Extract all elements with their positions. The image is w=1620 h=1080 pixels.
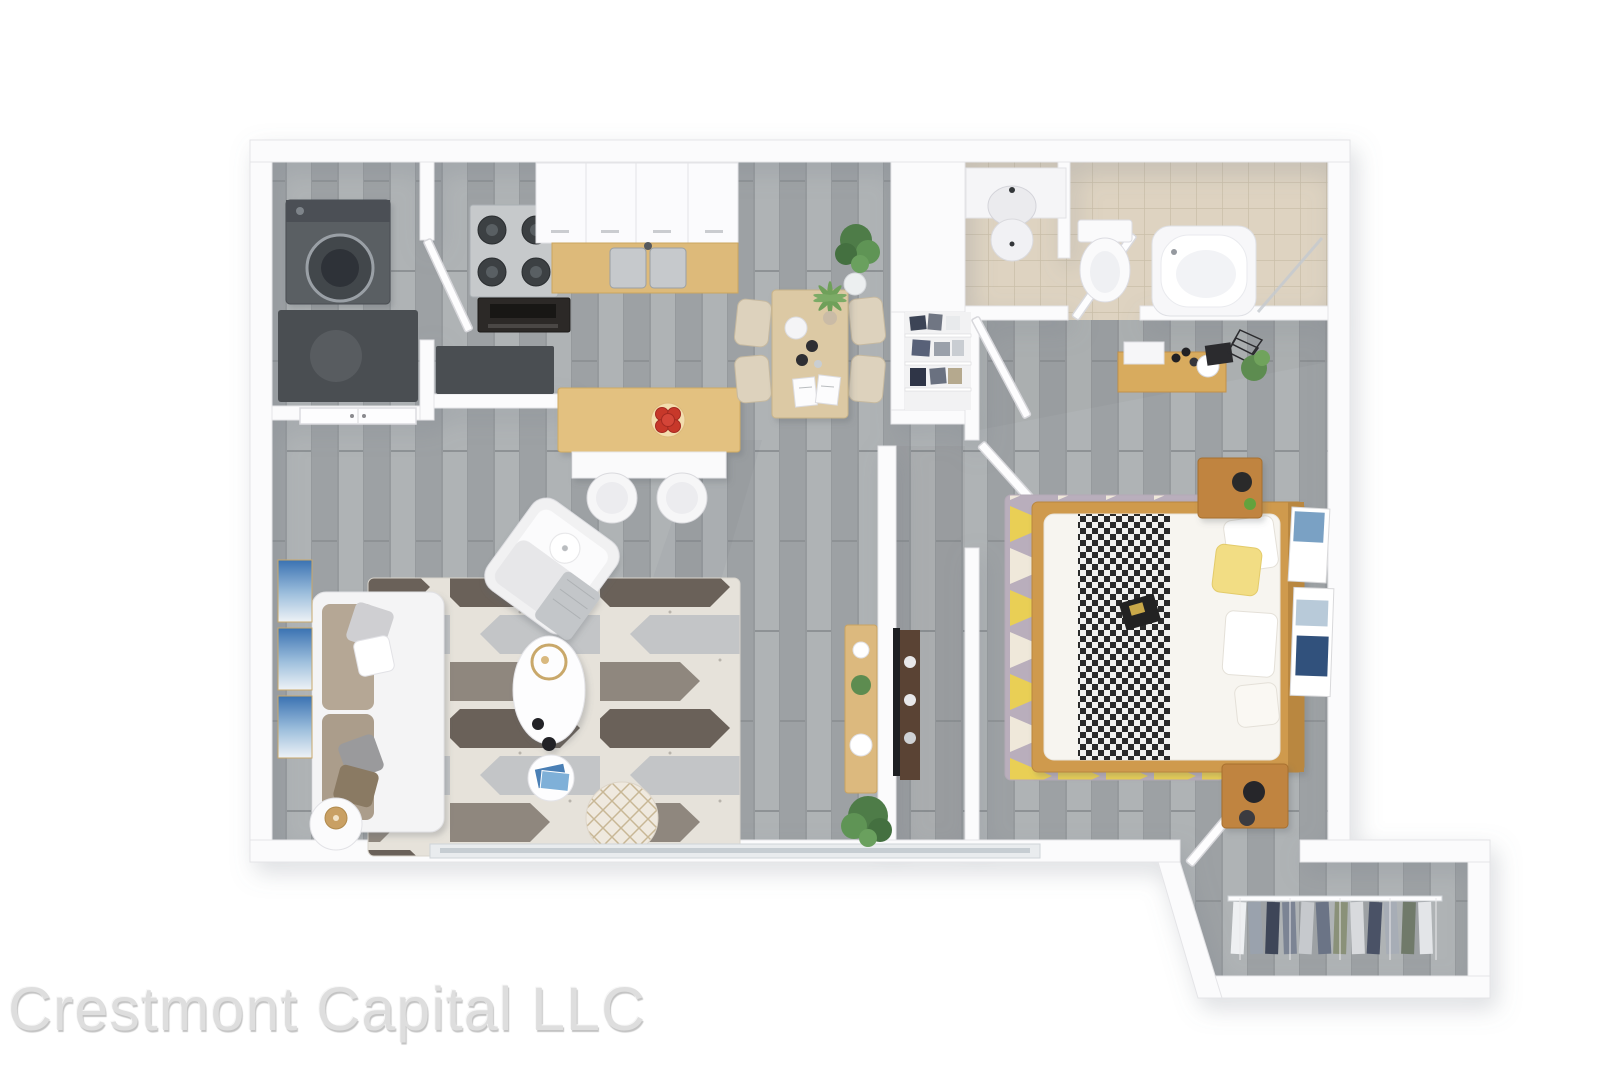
linen-closet — [905, 312, 971, 410]
cosmetics-icon — [1172, 354, 1181, 363]
corner-counter — [436, 346, 554, 394]
wall-top — [250, 140, 1350, 162]
wire-shelf-rail — [1228, 896, 1442, 901]
counter-double-sink — [552, 242, 738, 293]
wall-bottom-right — [1300, 840, 1490, 862]
bag-icon — [1205, 342, 1234, 365]
lamp-icon — [1243, 781, 1265, 803]
yellow-pillow — [1211, 543, 1263, 596]
wall-extension-bottom — [1214, 976, 1490, 998]
apple-bowl-icon — [651, 403, 685, 437]
nightstand-south — [1222, 764, 1288, 828]
floor-plan-render: Crestmont Capital LLC — [0, 0, 1620, 1080]
plant-icon — [851, 675, 871, 695]
upper-cabinets — [536, 163, 738, 243]
oven-icon — [478, 298, 570, 332]
dining-chair — [734, 355, 772, 404]
magazine-side-table — [528, 755, 574, 801]
dryer-top-icon — [310, 330, 362, 382]
floor-plan-canvas — [0, 0, 1620, 1080]
mirror-icon — [1124, 342, 1164, 364]
sofa — [312, 592, 444, 832]
wall-closet-south — [891, 410, 971, 424]
pot-icon — [796, 354, 808, 366]
wall-left — [250, 162, 272, 862]
wall-bedroom-west-lower — [965, 548, 979, 840]
faucet-icon — [644, 242, 652, 250]
wire-shelf — [905, 362, 971, 365]
entry-door — [300, 408, 416, 424]
tv-icon — [893, 628, 900, 776]
lamp-icon — [1232, 472, 1252, 492]
bar-stool-seat — [666, 482, 698, 514]
plant-icon — [1244, 498, 1256, 510]
clock-icon — [1239, 810, 1255, 826]
wall-right — [1328, 162, 1350, 862]
open-magazine-icon — [793, 377, 818, 407]
breakfast-bar — [558, 388, 740, 478]
watermark-text: Crestmont Capital LLC — [8, 974, 768, 1044]
magazine-icon — [540, 771, 570, 792]
pot-icon — [806, 340, 818, 352]
dining-chair — [848, 296, 887, 345]
toilet-icon — [1078, 220, 1132, 302]
white-pillow — [1222, 610, 1278, 677]
bathtub-icon — [1152, 226, 1256, 316]
bar-stool-seat — [596, 482, 628, 514]
wall-dining-east — [891, 162, 965, 312]
wall-art-triptych — [278, 560, 312, 758]
wall-laundry-east-upper — [420, 162, 434, 240]
throw-pillow — [353, 635, 396, 678]
leaning-posters — [1288, 507, 1334, 697]
faucet-icon — [1009, 187, 1015, 193]
cosmetics-icon — [1182, 348, 1191, 357]
tub-faucet-icon — [1171, 249, 1177, 255]
dining-chair — [848, 355, 886, 404]
washing-machine-icon — [286, 200, 390, 304]
vase-icon — [853, 642, 869, 658]
wall-bathroom-south-left — [965, 306, 1068, 320]
pouf — [586, 782, 658, 854]
white-pillow — [1234, 682, 1280, 728]
wire-shelf — [905, 334, 971, 337]
lamp-side-table — [310, 798, 362, 850]
dining-chair — [734, 298, 773, 347]
dining-table — [772, 290, 848, 418]
bowl-icon — [850, 734, 872, 756]
bowl-icon — [532, 718, 544, 730]
wall-laundry-east-lower — [420, 340, 434, 420]
wire-shelf — [905, 388, 971, 391]
plate-icon — [785, 317, 807, 339]
walk-in-closet — [1228, 896, 1442, 960]
wall-kitchen-corner — [434, 394, 564, 408]
wall-closet-west — [891, 312, 905, 416]
window-bottom — [430, 844, 1040, 858]
bowl-icon — [542, 737, 556, 751]
nightstand-north — [1198, 458, 1262, 518]
glass-icon — [814, 360, 822, 368]
checkered-throw — [1078, 514, 1170, 760]
double-bed — [1032, 502, 1304, 772]
open-magazine-icon — [815, 375, 840, 405]
